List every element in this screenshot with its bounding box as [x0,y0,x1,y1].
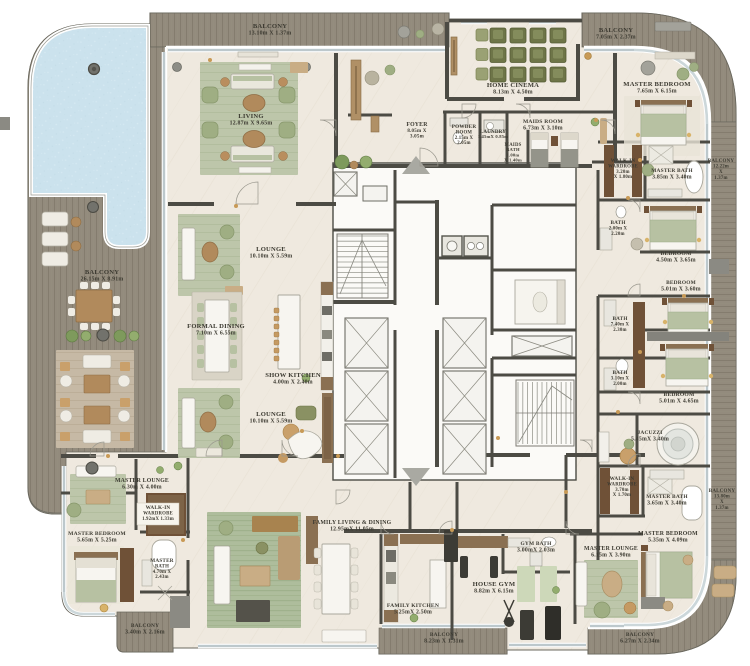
svg-text:2.15m X: 2.15m X [455,136,474,141]
svg-text:1.45mX 0.85m: 1.45mX 0.85m [478,134,509,139]
svg-text:7.10m X 6.55m: 7.10m X 6.55m [196,330,236,336]
svg-text:X 1.70m: X 1.70m [613,493,631,498]
svg-text:MASTER BEDROOM: MASTER BEDROOM [638,531,698,537]
svg-text:BATH: BATH [155,564,169,569]
svg-text:BEDROOM: BEDROOM [666,280,696,286]
svg-text:WALK-IN: WALK-IN [611,158,636,164]
svg-text:5.01m X 4.65m: 5.01m X 4.65m [659,398,699,404]
svg-text:X 1.80m: X 1.80m [614,175,632,180]
svg-text:LOUNGE: LOUNGE [256,246,286,253]
svg-text:HOME CINEMA: HOME CINEMA [487,82,539,89]
svg-text:BEDROOM: BEDROOM [661,251,692,257]
svg-text:10.10m X 5.59m: 10.10m X 5.59m [250,418,293,424]
svg-text:BALCONY: BALCONY [85,269,119,276]
svg-text:FAMILY KITCHEN: FAMILY KITCHEN [387,603,439,609]
svg-text:HOUSE GYM: HOUSE GYM [473,581,516,588]
svg-text:SHOW KITCHEN: SHOW KITCHEN [265,372,321,379]
svg-text:BALCONY: BALCONY [599,27,633,34]
svg-text:BALCONY: BALCONY [131,623,159,629]
svg-text:6.15m X 3.90m: 6.15m X 3.90m [591,552,631,558]
svg-text:2.00m X: 2.00m X [609,226,628,231]
svg-text:8.23m X 1.31m: 8.23m X 1.31m [424,638,464,644]
svg-text:5.45mX 3.40m: 5.45mX 3.40m [631,436,669,442]
svg-text:BALCONY: BALCONY [626,632,654,638]
svg-text:BEDROOM: BEDROOM [664,392,695,398]
svg-text:WALK-IN: WALK-IN [146,505,171,511]
svg-text:2.43m: 2.43m [155,575,168,580]
svg-text:GYM BATH: GYM BATH [521,541,553,547]
svg-text:13.80m: 13.80m [714,495,730,500]
svg-text:5.01m X 3.60m: 5.01m X 3.60m [661,286,701,292]
svg-text:1.92mX 1.33m: 1.92mX 1.33m [142,517,174,522]
svg-text:3.10m X: 3.10m X [611,376,630,381]
svg-text:WALK-IN: WALK-IN [610,476,635,482]
svg-text:1.37m: 1.37m [715,506,728,511]
svg-text:4.00m X 2.40m: 4.00m X 2.40m [273,379,313,385]
svg-text:BALCONY: BALCONY [708,159,735,164]
svg-text:6.30m X 4.00m: 6.30m X 4.00m [122,484,162,490]
svg-text:3.00mX 2.03m: 3.00mX 2.03m [517,547,555,553]
svg-text:BALCONY: BALCONY [709,489,736,494]
svg-text:3.40m X 2.16m: 3.40m X 2.16m [125,629,165,635]
svg-text:FAMILY LIVING & DINING: FAMILY LIVING & DINING [313,520,392,526]
svg-text:12.87m X 9.65m: 12.87m X 9.65m [230,120,273,126]
svg-text:1.37m: 1.37m [714,176,727,181]
svg-text:ROOM: ROOM [456,130,473,135]
svg-text:JACUZZI: JACUZZI [637,430,662,436]
svg-text:3.20m: 3.20m [616,170,629,175]
svg-text:BATH: BATH [610,220,625,226]
svg-text:X 1.40m: X 1.40m [504,158,522,163]
svg-text:MASTER BEDROOM: MASTER BEDROOM [68,531,126,537]
svg-text:3.85m X 3.40m: 3.85m X 3.40m [652,174,692,180]
svg-text:12.95mX 11.05m: 12.95mX 11.05m [330,526,374,532]
svg-text:3.65m X 3.40m: 3.65m X 3.40m [647,500,687,506]
svg-text:WARDROBE: WARDROBE [607,482,637,487]
svg-text:WARDROBE: WARDROBE [143,512,173,517]
svg-text:BATH: BATH [612,316,627,322]
svg-text:4.70m X: 4.70m X [153,570,172,575]
svg-text:MASTER BATH: MASTER BATH [651,168,693,174]
svg-text:2.05m: 2.05m [457,141,470,146]
svg-text:MASTER LOUNGE: MASTER LOUNGE [584,546,638,552]
svg-text:MAIDS ROOM: MAIDS ROOM [523,119,564,125]
svg-text:10.10m X 5.59m: 10.10m X 5.59m [250,253,293,259]
svg-text:MASTER BATH: MASTER BATH [646,494,688,500]
svg-text:26.15m X 8.91m: 26.15m X 8.91m [81,276,124,282]
svg-text:6.27m X 2.34m: 6.27m X 2.34m [620,638,660,644]
svg-text:FORMAL DINING: FORMAL DINING [187,323,245,330]
svg-text:7.65m X 6.15m: 7.65m X 6.15m [637,88,677,94]
svg-text:BALCONY: BALCONY [430,632,458,638]
svg-text:8.13m X 4.50m: 8.13m X 4.50m [493,89,533,95]
svg-text:POWDER: POWDER [452,124,477,130]
svg-text:2.20m: 2.20m [611,232,624,237]
svg-text:8.82m X 6.15m: 8.82m X 6.15m [474,588,514,594]
svg-text:BATH: BATH [612,370,627,376]
svg-text:6.73m X 3.10m: 6.73m X 3.10m [523,125,563,131]
svg-text:5.35m X 4.09m: 5.35m X 4.09m [648,537,688,543]
svg-text:FOYER: FOYER [406,122,428,128]
svg-text:X: X [719,170,723,175]
svg-text:12.22m: 12.22m [713,165,729,170]
svg-text:LIVING: LIVING [238,113,263,120]
svg-text:5.25mX 2.50m: 5.25mX 2.50m [394,609,432,615]
svg-text:X: X [720,500,724,505]
svg-text:WARDROBE: WARDROBE [608,164,638,169]
svg-text:8.05m X: 8.05m X [407,129,426,134]
svg-text:3.70m: 3.70m [615,488,628,493]
svg-text:MASTER: MASTER [150,558,173,564]
svg-text:4.50m X 3.65m: 4.50m X 3.65m [656,257,696,263]
svg-text:2.00m: 2.00m [613,382,626,387]
svg-text:BALCONY: BALCONY [253,23,287,30]
svg-text:MASTER LOUNGE: MASTER LOUNGE [115,478,169,484]
svg-text:5.65m X 5.25m: 5.65m X 5.25m [77,537,117,543]
svg-text:LOUNGE: LOUNGE [256,411,286,418]
svg-text:7.40m X: 7.40m X [611,322,630,327]
svg-text:7.05m X 2.37m: 7.05m X 2.37m [596,34,636,40]
svg-text:3.05m: 3.05m [410,135,425,140]
svg-text:MASTER BEDROOM: MASTER BEDROOM [623,81,691,88]
svg-text:2.30m: 2.30m [613,328,626,333]
svg-text:13.10m X 1.37m: 13.10m X 1.37m [249,30,292,36]
